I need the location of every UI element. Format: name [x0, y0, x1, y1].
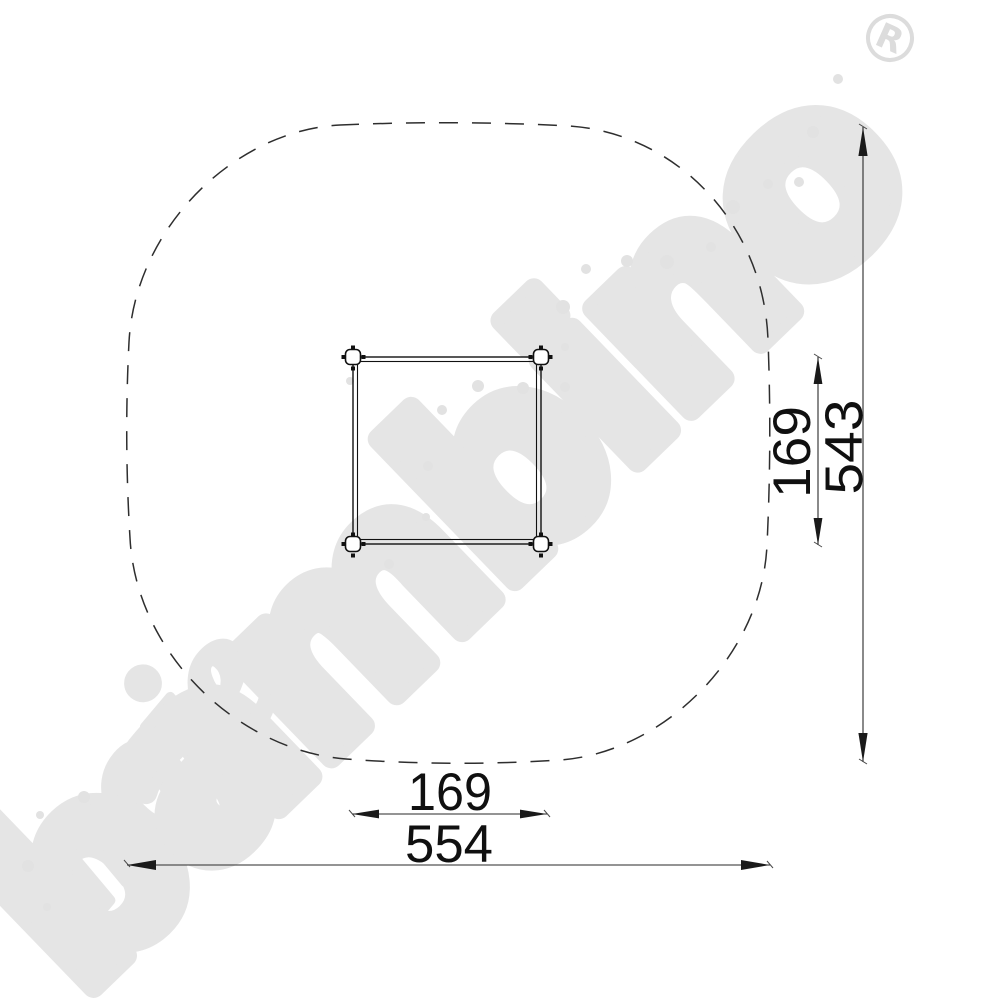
label-inner-height: 169: [763, 406, 822, 498]
dimension-drawing-canvas: moje bambino R: [0, 0, 1000, 1000]
label-outer-height: 543: [815, 400, 874, 495]
arrow-169w-right: [520, 810, 547, 819]
label-inner-width: 169: [408, 763, 492, 822]
arrow-543-bottom: [858, 733, 867, 762]
watermark-registered-icon: R: [861, 9, 919, 67]
label-outer-width: 554: [405, 815, 493, 874]
drawing-svg: moje bambino R: [0, 0, 1000, 1000]
post-top-left: [342, 346, 366, 371]
arrow-554-right: [741, 860, 770, 870]
arrow-169h-bottom: [814, 518, 823, 545]
